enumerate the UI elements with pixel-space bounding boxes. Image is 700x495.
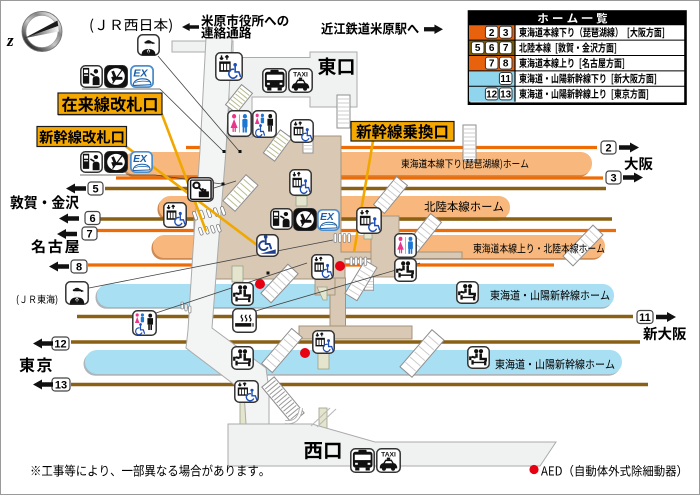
- svg-text:2: 2: [489, 28, 495, 39]
- svg-text:6: 6: [489, 43, 495, 54]
- svg-text:3: 3: [503, 28, 509, 39]
- svg-text:TAXI: TAXI: [293, 71, 308, 78]
- svg-text:3: 3: [610, 172, 616, 184]
- svg-text:13: 13: [55, 379, 67, 391]
- svg-text:12: 12: [486, 89, 498, 100]
- svg-text:z: z: [6, 31, 14, 50]
- svg-text:5: 5: [475, 43, 481, 54]
- svg-text:TAXI: TAXI: [381, 451, 396, 458]
- svg-text:8: 8: [503, 59, 509, 70]
- svg-text:2: 2: [605, 142, 611, 154]
- svg-text:13: 13: [500, 89, 512, 100]
- svg-text:5: 5: [92, 183, 98, 195]
- svg-text:7: 7: [503, 43, 509, 54]
- svg-text:11: 11: [639, 312, 651, 324]
- svg-text:7: 7: [489, 59, 495, 70]
- svg-text:EX: EX: [320, 212, 335, 223]
- svg-text:EX: EX: [133, 68, 148, 80]
- svg-text:7: 7: [86, 228, 92, 240]
- svg-text:6: 6: [89, 213, 95, 225]
- svg-text:11: 11: [500, 74, 511, 85]
- svg-text:8: 8: [76, 261, 82, 273]
- svg-text:EX: EX: [133, 154, 148, 165]
- svg-text:12: 12: [54, 338, 66, 350]
